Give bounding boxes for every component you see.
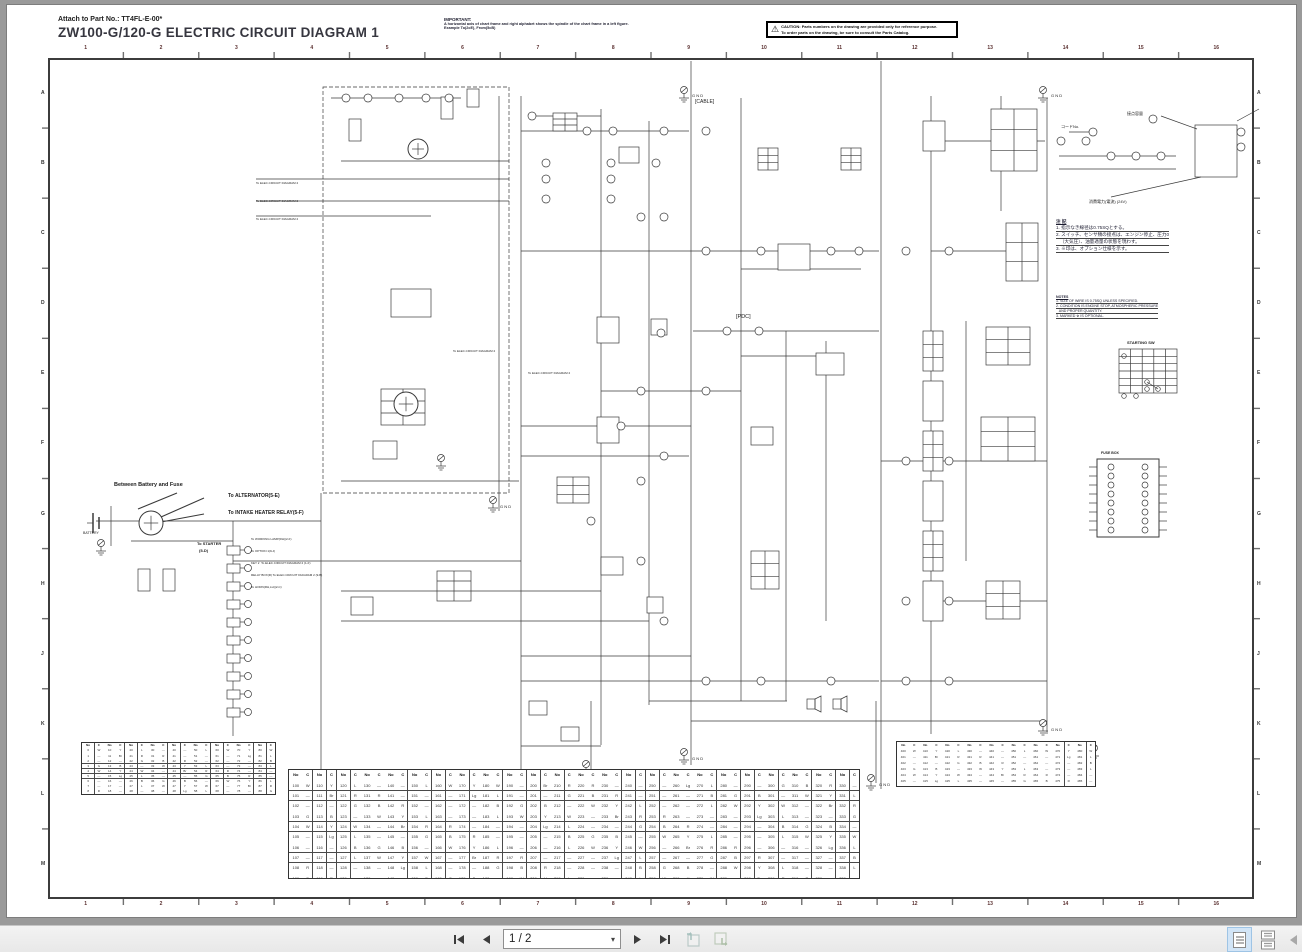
table-cell: 323: [812, 811, 826, 821]
ruler-column-number: 4: [310, 901, 313, 907]
table-cell: 335: [836, 832, 850, 842]
table-cell: R: [826, 780, 835, 790]
table-cell: 327: [812, 853, 826, 863]
table-cell: B: [612, 832, 621, 842]
table-cell: Y: [932, 748, 940, 754]
table-cell: Y: [181, 764, 189, 769]
table-cell: —: [565, 863, 574, 873]
table-cell: 415: [919, 778, 932, 784]
ruler-column-number: 8: [612, 45, 615, 51]
table-cell: 280: [717, 780, 731, 790]
table-cell: —: [351, 873, 360, 879]
table-cell: 258: [646, 863, 660, 873]
table-cell: —: [1065, 760, 1073, 766]
toolbar-collapse-arrow[interactable]: [1290, 935, 1297, 945]
table-cell: Y: [116, 769, 124, 774]
table-cell: R: [707, 842, 716, 852]
table-cell: G: [850, 811, 859, 821]
diagram-label-relaybox: RELAY BOX(R) To ELEC.CIRCUIT DIAGRAM 2 (…: [251, 574, 322, 577]
table-cell: W: [446, 780, 455, 790]
table-cell: 23: [125, 764, 137, 769]
table-cell: 186: [479, 842, 493, 852]
table-cell: —: [998, 748, 1006, 754]
table-cell: —: [636, 780, 645, 790]
table-cell: 412: [919, 760, 932, 766]
table-cell: G: [1020, 778, 1028, 784]
table-cell: W: [517, 811, 526, 821]
ruler-column-number: 11: [837, 901, 842, 907]
table-cell: —: [303, 853, 312, 863]
table-cell: —: [470, 811, 479, 821]
table-cell: —: [181, 794, 189, 795]
diagram-label-to_alt: To ALTERNATOR(5-E): [228, 494, 280, 500]
table-header-cell: No: [985, 742, 998, 748]
table-cell: 146: [384, 842, 398, 852]
ruler-row-letter: F: [1257, 440, 1260, 446]
table-cell: Y: [470, 842, 479, 852]
ruler-row-letter: B: [1257, 160, 1261, 166]
first-page-button[interactable]: [447, 928, 471, 950]
dropdown-caret-icon: ▾: [611, 935, 615, 944]
table-cell: W: [517, 873, 526, 879]
table-cell: Lg: [116, 774, 124, 779]
single-page-view-button[interactable]: [1227, 927, 1252, 952]
table-cell: 55: [189, 774, 201, 779]
table-cell: 141: [384, 791, 398, 801]
table-cell: —: [850, 873, 859, 879]
table-cell: 250: [646, 780, 660, 790]
table-cell: —: [116, 789, 124, 794]
table-cell: 116: [313, 842, 327, 852]
table-cell: 475: [1051, 778, 1064, 784]
table-cell: —: [116, 779, 124, 784]
table-header-cell: C: [517, 770, 526, 780]
table-cell: R: [159, 753, 167, 758]
table-cell: —: [517, 832, 526, 842]
table-cell: L: [267, 779, 275, 784]
table-cell: —: [303, 801, 312, 811]
table-cell: 174: [455, 822, 469, 832]
table-cell: 127: [337, 853, 351, 863]
next-view-button[interactable]: [709, 928, 733, 950]
table-cell: B: [779, 822, 788, 832]
table-cell: —: [224, 789, 232, 794]
ruler-column-number: 8: [612, 901, 615, 907]
table-cell: 274: [693, 822, 707, 832]
table-cell: B: [181, 779, 189, 784]
table-cell: —: [731, 811, 740, 821]
table-cell: 30: [146, 748, 158, 753]
ruler-column-number: 5: [386, 901, 389, 907]
table-cell: 471: [1051, 754, 1064, 760]
table-cell: 148: [384, 863, 398, 873]
table-cell: 440: [985, 748, 998, 754]
table-cell: 21: [125, 753, 137, 758]
table-cell: 39: [146, 794, 158, 795]
previous-view-button[interactable]: [681, 928, 705, 950]
table-cell: 486: [1073, 784, 1086, 787]
last-page-icon: [658, 933, 672, 946]
table-cell: 333: [836, 811, 850, 821]
table-cell: —: [327, 863, 336, 873]
table-cell: B: [267, 758, 275, 763]
table-cell: —: [446, 801, 455, 811]
continuous-scroll-view-icon: [1260, 930, 1276, 950]
table-cell: L: [1087, 754, 1095, 760]
table-cell: 261: [669, 791, 683, 801]
table-cell: 134: [360, 822, 374, 832]
table-cell: 485: [1073, 778, 1086, 784]
table-cell: L: [422, 811, 431, 821]
table-cell: W: [224, 748, 232, 753]
table-cell: B: [683, 863, 692, 873]
table-cell: 135: [360, 832, 374, 842]
table-cell: —: [636, 832, 645, 842]
table-cell: 211: [550, 791, 564, 801]
table-cell: —: [910, 754, 918, 760]
table-cell: 193: [503, 811, 517, 821]
ruler-row-letter: A: [1257, 90, 1261, 96]
table-cell: 56: [189, 779, 201, 784]
ruler-row-letter: K: [41, 721, 45, 727]
table-cell: 236: [598, 842, 612, 852]
table-cell: B: [731, 853, 740, 863]
table-cell: 339: [836, 873, 850, 879]
table-cell: 191: [503, 791, 517, 801]
table-cell: 416: [919, 784, 932, 787]
table-cell: 118: [313, 863, 327, 873]
table-cell: 59: [189, 794, 201, 795]
table-cell: —: [245, 769, 253, 774]
table-cell: 147: [384, 853, 398, 863]
table-cell: R: [731, 842, 740, 852]
table-header-cell: No: [125, 743, 137, 748]
table-cell: W: [374, 853, 383, 863]
table-cell: —: [976, 778, 984, 784]
table-header-cell: No: [919, 742, 932, 748]
table-cell: 26: [125, 779, 137, 784]
table-cell: R: [541, 863, 550, 873]
table-cell: B: [954, 784, 962, 787]
table-cell: —: [683, 801, 692, 811]
table-cell: B: [541, 801, 550, 811]
table-header-cell: No: [812, 770, 826, 780]
table-cell: 150: [408, 780, 422, 790]
table-cell: R: [660, 811, 669, 821]
table-cell: 254: [646, 822, 660, 832]
table-cell: 269: [669, 873, 683, 879]
table-header-cell: No: [574, 770, 588, 780]
table-cell: 466: [1029, 784, 1042, 787]
table-cell: 175: [455, 832, 469, 842]
table-cell: Y: [1065, 784, 1073, 787]
table-cell: 65: [211, 774, 223, 779]
table-cell: 293: [741, 811, 755, 821]
table-cell: B: [588, 791, 597, 801]
table-cell: 310: [788, 780, 802, 790]
table-cell: 321: [812, 791, 826, 801]
table-cell: B: [327, 811, 336, 821]
table-cell: 57: [189, 784, 201, 789]
diagram-label-diag2: To ELEC.CIRCUIT DIAGRAM 2: [453, 350, 495, 353]
table-cell: —: [517, 822, 526, 832]
table-cell: 79: [232, 794, 244, 795]
continuous-scroll-view-button[interactable]: [1255, 927, 1280, 952]
previous-page-icon: [480, 933, 494, 946]
table-cell: 67: [211, 784, 223, 789]
ruler-column-number: 1: [84, 901, 87, 907]
table-cell: 324: [812, 822, 826, 832]
table-cell: 423: [941, 766, 954, 772]
table-cell: Lg: [181, 789, 189, 794]
table-cell: R: [374, 791, 383, 801]
table-header-cell: No: [168, 743, 180, 748]
table-cell: 229: [574, 873, 588, 879]
diagram-label-gnd: G N D: [1051, 728, 1062, 733]
table-header-cell: No: [82, 743, 94, 748]
table-header-cell: No: [897, 742, 910, 748]
table-cell: 266: [669, 842, 683, 852]
table-cell: R: [636, 811, 645, 821]
table-cell: 334: [836, 822, 850, 832]
table-cell: 176: [455, 842, 469, 852]
table-cell: 2: [82, 758, 94, 763]
table-cell: —: [116, 758, 124, 763]
table-cell: —: [493, 832, 502, 842]
table-cell: 42: [168, 758, 180, 763]
table-cell: —: [446, 791, 455, 801]
table-cell: 320: [812, 780, 826, 790]
table-cell: 74: [232, 769, 244, 774]
table-cell: 18: [103, 789, 115, 794]
ruler-column-number: 10: [761, 901, 767, 907]
page-number-value: 1 / 2: [509, 933, 607, 945]
table-header-cell: C: [660, 770, 669, 780]
table-header-cell: C: [116, 743, 124, 748]
ruler-column-number: 16: [1214, 45, 1220, 51]
diagram-label-to_ihr: To INTAKE HEATER RELAY(5-F): [228, 511, 304, 517]
page-number-dropdown[interactable]: 1 / 2 ▾: [503, 929, 621, 949]
table-cell: 336: [836, 842, 850, 852]
table-cell: 299: [741, 873, 755, 879]
table-cell: W: [802, 791, 811, 801]
table-cell: 189: [479, 873, 493, 879]
table-cell: —: [95, 784, 103, 789]
ruler-column-number: 6: [461, 45, 464, 51]
table-cell: —: [181, 753, 189, 758]
next-page-button[interactable]: [625, 928, 649, 950]
table-cell: 160: [432, 780, 446, 790]
ruler-column-number: 5: [386, 45, 389, 51]
diagram-label-fusebox: FUSE BOX: [1101, 451, 1119, 455]
table-cell: Lg: [398, 863, 407, 873]
table-cell: W: [660, 832, 669, 842]
table-cell: 4: [82, 769, 94, 774]
notes-english: NOTES1. SIZE OF WIRE IS 0.75SQ UNLESS SP…: [1056, 295, 1158, 319]
table-cell: —: [159, 794, 167, 795]
table-cell: B: [202, 794, 210, 795]
previous-page-button[interactable]: [475, 928, 499, 950]
table-cell: —: [267, 794, 275, 795]
table-cell: L: [202, 748, 210, 753]
table-cell: —: [493, 822, 502, 832]
table-cell: 322: [812, 801, 826, 811]
table-cell: Lg: [683, 780, 692, 790]
ruler-column-number: 13: [987, 901, 993, 907]
table-cell: B: [1087, 760, 1095, 766]
ruler-column-number: 10: [761, 45, 767, 51]
table-cell: 441: [985, 754, 998, 760]
table-cell: 184: [479, 822, 493, 832]
table-cell: W: [95, 769, 103, 774]
table-cell: —: [116, 784, 124, 789]
ruler-column-number: 16: [1214, 901, 1220, 907]
table-cell: 275: [693, 832, 707, 842]
table-cell: W: [976, 766, 984, 772]
table-cell: Br: [116, 753, 124, 758]
table-header-cell: C: [802, 770, 811, 780]
last-page-button[interactable]: [653, 928, 677, 950]
table-cell: L: [202, 764, 210, 769]
table-cell: 197: [503, 853, 517, 863]
table-cell: —: [95, 753, 103, 758]
table-cell: —: [303, 842, 312, 852]
table-cell: 454: [1007, 772, 1020, 778]
ruler-row-letter: H: [41, 581, 45, 587]
table-cell: 481: [1073, 754, 1086, 760]
table-header-cell: C: [910, 742, 918, 748]
table-cell: 411: [919, 754, 932, 760]
table-header-cell: No: [289, 770, 303, 780]
table-cell: 218: [550, 863, 564, 873]
table-cell: L: [351, 853, 360, 863]
diagram-label-diag2: To ELEC.CIRCUIT DIAGRAM 2: [256, 218, 298, 221]
next-page-icon: [630, 933, 644, 946]
table-cell: 128: [337, 863, 351, 873]
table-cell: 230: [598, 780, 612, 790]
table-header-cell: No: [432, 770, 446, 780]
table-cell: 78: [232, 789, 244, 794]
table-cell: L: [267, 764, 275, 769]
table-cell: 245: [622, 832, 636, 842]
table-cell: B: [1042, 778, 1050, 784]
table-cell: —: [612, 873, 621, 879]
table-cell: 234: [598, 822, 612, 832]
diagram-label-key2: KEY 2 To ELEC.CIRCUIT DIAGRAM 2 (1-F): [251, 562, 311, 565]
table-cell: 426: [941, 784, 954, 787]
table-cell: —: [588, 873, 597, 879]
table-cell: 161: [432, 791, 446, 801]
table-cell: W: [636, 842, 645, 852]
table-cell: —: [446, 853, 455, 863]
table-cell: W: [159, 764, 167, 769]
table-cell: 442: [985, 760, 998, 766]
table-cell: 179: [455, 873, 469, 879]
table-cell: L: [707, 832, 716, 842]
table-cell: 185: [479, 832, 493, 842]
table-cell: B: [998, 784, 1006, 787]
table-cell: 43: [168, 764, 180, 769]
table-cell: 110: [313, 780, 327, 790]
table-cell: B: [116, 764, 124, 769]
table-cell: L: [779, 863, 788, 873]
ruler-row-letter: F: [41, 440, 44, 446]
table-cell: 85: [254, 774, 266, 779]
ruler-column-number: 2: [160, 901, 163, 907]
table-cell: Lg: [1065, 754, 1073, 760]
table-cell: G: [303, 811, 312, 821]
table-header-cell: C: [541, 770, 550, 780]
table-cell: 105: [289, 832, 303, 842]
table-cell: 214: [550, 822, 564, 832]
table-cell: —: [612, 822, 621, 832]
table-header-cell: No: [384, 770, 398, 780]
table-cell: 455: [1007, 778, 1020, 784]
table-cell: 122: [337, 801, 351, 811]
table-cell: B: [802, 780, 811, 790]
table-cell: B: [159, 758, 167, 763]
table-cell: —: [470, 801, 479, 811]
table-cell: —: [493, 873, 502, 879]
table-cell: 476: [1051, 784, 1064, 787]
table-cell: 14: [103, 769, 115, 774]
table-header-cell: No: [1029, 742, 1042, 748]
table-cell: G: [910, 766, 918, 772]
page-navigation: 1 / 2 ▾: [447, 928, 733, 950]
table-cell: R: [976, 754, 984, 760]
table-cell: R: [327, 873, 336, 879]
table-header-cell: C: [493, 770, 502, 780]
table-cell: —: [802, 801, 811, 811]
ruler-column-number: 1: [84, 45, 87, 51]
table-cell: Br: [181, 769, 189, 774]
table-cell: 44: [168, 769, 180, 774]
next-view-icon: [712, 931, 730, 947]
table-cell: 425: [941, 778, 954, 784]
table-header-cell: C: [95, 743, 103, 748]
table-cell: 48: [168, 789, 180, 794]
ruler-row-letter: L: [41, 791, 44, 797]
table-cell: W: [422, 853, 431, 863]
ruler-column-number: 3: [235, 45, 238, 51]
table-cell: R: [351, 791, 360, 801]
table-cell: W: [138, 769, 146, 774]
table-cell: 32: [146, 758, 158, 763]
ruler-row-letter: J: [41, 651, 44, 657]
table-cell: 288: [717, 863, 731, 873]
table-cell: Y: [612, 801, 621, 811]
table-cell: 28: [125, 789, 137, 794]
table-cell: 168: [432, 863, 446, 873]
table-cell: 108: [289, 863, 303, 873]
table-cell: 123: [337, 811, 351, 821]
table-cell: 102: [289, 801, 303, 811]
table-header-cell: No: [717, 770, 731, 780]
table-cell: 198: [503, 863, 517, 873]
ruler-row-letter: L: [1257, 791, 1260, 797]
table-cell: —: [932, 784, 940, 787]
table-cell: Y: [116, 748, 124, 753]
table-cell: 295: [741, 832, 755, 842]
table-cell: Lg: [327, 832, 336, 842]
table-cell: —: [660, 780, 669, 790]
table-cell: —: [683, 853, 692, 863]
table-cell: R: [1065, 778, 1073, 784]
table-cell: B: [446, 832, 455, 842]
table-cell: —: [910, 784, 918, 787]
diagram-label-to_starter2: (5-D): [199, 549, 208, 554]
table-cell: 41: [168, 753, 180, 758]
